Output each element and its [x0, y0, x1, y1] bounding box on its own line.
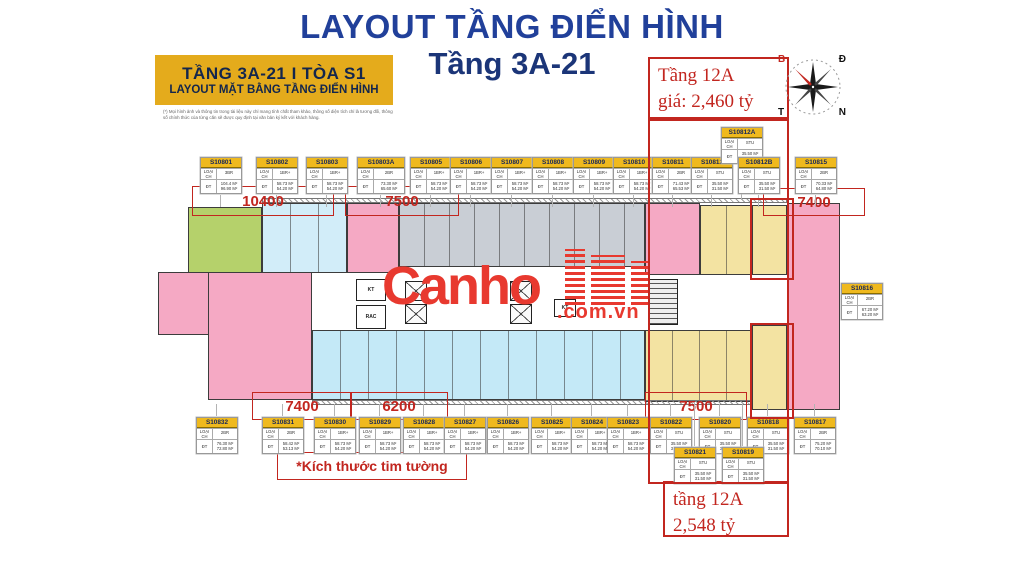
unit-type-value: 1BR+ [420, 429, 444, 439]
unit-area-row: ĐT58.73 M²54.20 M² [307, 179, 347, 193]
unit-type-row: LOẠI CH2BR [795, 428, 835, 439]
unit-type-value: STU [755, 169, 779, 179]
unit-type-value: 1BR+ [590, 169, 614, 179]
unit-type-label: LOẠI CH [492, 169, 508, 179]
unit-type-label: LOẠI CH [700, 429, 716, 439]
unit-area-values: 58.73 M²54.20 M² [624, 440, 648, 453]
unit-type-value: 1BR+ [467, 169, 491, 179]
unit-type-label: LOẠI CH [445, 429, 461, 439]
unit-type-value: STU [691, 459, 715, 469]
unit-card-S10827: S10827LOẠI CH1BR+ĐT58.73 M²54.20 M² [444, 417, 486, 454]
unit-pink-bottom-left [208, 272, 312, 400]
unit-type-value: 2BR [213, 429, 237, 439]
unit-card-S10825: S10825LOẠI CH1BR+ĐT58.73 M²54.20 M² [531, 417, 573, 454]
unit-type-value: 1BR+ [508, 169, 532, 179]
leader-line-S10820 [719, 404, 720, 416]
compass-label-south: N [839, 107, 846, 118]
unit-area-row: ĐT58.73 M²54.20 M² [532, 439, 572, 453]
unit-area-values: 75.20 M²70.10 M² [811, 440, 835, 453]
unit-card-id: S10815 [796, 158, 836, 168]
unit-area-row: ĐT58.73 M²54.20 M² [572, 439, 612, 453]
leader-line-S10832 [216, 404, 217, 416]
leader-line-S10819 [742, 402, 743, 446]
unit-area-values: 58.73 M²54.20 M² [461, 440, 485, 453]
unit-area-row: ĐT58.73 M²54.20 M² [315, 439, 355, 453]
unit-area-values: 58.73 M²54.20 M² [590, 180, 614, 193]
unit-type-row: LOẠI CH1BR+ [315, 428, 355, 439]
units-cyan-bottom [312, 330, 645, 400]
unit-card-id: S10829 [360, 418, 400, 428]
unit-area-values: 58.42 M²53.13 M² [279, 440, 303, 453]
unit-card-S10803A: S10803ALOẠI CH2BRĐT73.30 M²65.60 M² [357, 157, 405, 194]
unit-type-label: LOẠI CH [614, 169, 630, 179]
unit-type-label: LOẠI CH [404, 429, 420, 439]
page-subtitle: Tầng 3A-21 [0, 46, 1024, 82]
unit-area-net: 54.20 M² [624, 446, 648, 451]
unit-type-row: LOẠI CHSTU [739, 168, 779, 179]
unit-area-values: 58.73 M²54.20 M² [630, 180, 654, 193]
unit-type-label: LOẠI CH [201, 169, 217, 179]
leader-line-S10818 [767, 404, 768, 416]
unit-card-id: S10827 [445, 418, 485, 428]
unit-area-row: ĐT58.73 M²54.20 M² [257, 179, 297, 193]
unit-card-id: S10832 [197, 418, 237, 428]
unit-card-id: S10817 [795, 418, 835, 428]
unit-card-id: S10809 [574, 158, 614, 168]
unit-type-label: LOẠI CH [608, 429, 624, 439]
unit-type-label: LOẠI CH [263, 429, 279, 439]
unit-type-value: STU [667, 429, 691, 439]
unit-type-value: 1BR+ [504, 429, 528, 439]
unit-area-row: ĐT35.50 M²31.50 M² [739, 179, 779, 193]
units-yellow-top [700, 205, 752, 275]
unit-type-row: LOẠI CH1BR+ [411, 168, 451, 179]
wall-dimension-note: *Kích thước tim tường [277, 452, 467, 480]
unit-area-values: 58.73 M²54.20 M² [467, 180, 491, 193]
compass-label-east: Đ [839, 54, 846, 65]
unit-card-id: S10826 [488, 418, 528, 428]
dimension-label-7400-3: 7400 [252, 392, 352, 420]
unit-area-label: ĐT [197, 440, 213, 453]
unit-area-label: ĐT [492, 180, 508, 193]
unit-area-label: ĐT [315, 440, 331, 453]
unit-area-net: 54.20 M² [323, 186, 347, 191]
unit-type-row: LOẠI CH1BR+ [451, 168, 491, 179]
leader-line-S10801 [220, 195, 221, 207]
unit-type-row: LOẠI CH1BR+ [533, 168, 573, 179]
unit-type-value: STU [716, 429, 740, 439]
unit-card-id: S10819 [723, 448, 763, 458]
unit-type-row: LOẠI CHSTU [722, 138, 762, 149]
leader-line-S10807 [511, 195, 512, 207]
unit-area-row: ĐT35.50 M²31.50 M² [692, 179, 732, 193]
unit-type-row: LOẠI CHSTU [700, 428, 740, 439]
unit-area-net: 54.20 M² [376, 446, 400, 451]
unit-area-label: ĐT [675, 470, 691, 483]
unit-type-row: LOẠI CH3BR [201, 168, 241, 179]
unit-type-row: LOẠI CH2BR [358, 168, 404, 179]
unit-area-row: ĐT58.73 M²54.20 M² [533, 179, 573, 193]
price-annotation-bottom-line2: 2,548 tỷ [673, 513, 779, 539]
unit-area-values: 58.73 M²54.20 M² [376, 440, 400, 453]
unit-area-values: 58.73 M²54.20 M² [323, 180, 347, 193]
unit-area-label: ĐT [796, 180, 812, 193]
unit-type-label: LOẠI CH [572, 429, 588, 439]
floorplan-page: LAYOUT TẦNG ĐIỂN HÌNH Tầng 3A-21 TẦNG 3A… [0, 0, 1024, 575]
unit-card-id: S10801 [201, 158, 241, 168]
unit-card-id: S10807 [492, 158, 532, 168]
unit-type-value: 2BR [858, 295, 882, 305]
unit-type-label: LOẠI CH [411, 169, 427, 179]
unit-type-row: LOẠI CH1BR+ [492, 168, 532, 179]
unit-card-S10828: S10828LOẠI CH1BR+ĐT58.73 M²54.20 M² [403, 417, 445, 454]
page-title: LAYOUT TẦNG ĐIỂN HÌNH [0, 8, 1024, 46]
unit-card-id: S10803 [307, 158, 347, 168]
unit-area-net: 54.20 M² [461, 446, 485, 451]
unit-card-id: S10812B [739, 158, 779, 168]
unit-card-S10815: S10815LOẠI CH2BRĐT70.33 M²64.80 M² [795, 157, 837, 194]
price-annotation-top-line1: Tầng 12A [658, 63, 779, 89]
unit-card-S10802: S10802LOẠI CH1BR+ĐT58.73 M²54.20 M² [256, 157, 298, 194]
unit-type-value: 1BR+ [461, 429, 485, 439]
leader-line-S10808 [552, 195, 553, 207]
unit-area-values: 71.43 M²65.53 M² [669, 180, 693, 193]
leader-line-S10822 [670, 404, 671, 416]
unit-area-net: 54.20 M² [331, 446, 355, 451]
unit-area-row: ĐT58.73 M²54.20 M² [492, 179, 532, 193]
unit-area-row: ĐT58.73 M²54.20 M² [614, 179, 654, 193]
unit-type-row: LOẠI CH2BR [653, 168, 693, 179]
unit-area-values: 35.50 M²31.50 M² [764, 440, 788, 453]
unit-area-net: 54.20 M² [630, 186, 654, 191]
unit-type-label: LOẠI CH [315, 429, 331, 439]
leader-line-S10812 [711, 195, 712, 207]
dimension-label-7500-5: 7500 [645, 392, 747, 420]
unit-area-label: ĐT [532, 440, 548, 453]
unit-type-value: STU [738, 139, 762, 149]
leader-line-S10811 [672, 195, 673, 207]
unit-type-row: LOẠI CH1BR+ [445, 428, 485, 439]
unit-area-values: 58.73 M²54.20 M² [427, 180, 451, 193]
unit-card-S10806: S10806LOẠI CH1BR+ĐT58.73 M²54.20 M² [450, 157, 492, 194]
unit-type-row: LOẠI CHSTU [723, 458, 763, 469]
unit-card-id: S10830 [315, 418, 355, 428]
unit-area-values: 76.30 M²72.80 M² [213, 440, 237, 453]
unit-card-S10816: S10816LOẠI CH2BRĐT67.20 M²63.20 M² [841, 283, 883, 320]
unit-area-net: 31.50 M² [739, 476, 763, 481]
leader-line-S10829 [379, 404, 380, 416]
unit-area-row: ĐT73.30 M²65.60 M² [358, 179, 404, 193]
unit-type-row: LOẠI CH1BR+ [614, 168, 654, 179]
unit-type-value: 1BR+ [549, 169, 573, 179]
unit-card-S10807: S10807LOẠI CH1BR+ĐT58.73 M²54.20 M² [491, 157, 533, 194]
unit-area-row: ĐT58.73 M²54.20 M² [608, 439, 648, 453]
price-annotation-bottom: tầng 12A 2,548 tỷ [663, 481, 789, 537]
unit-area-label: ĐT [574, 180, 590, 193]
tower-info-line2: LAYOUT MẶT BẰNG TẦNG ĐIỂN HÌNH [155, 84, 393, 96]
unit-card-S10812B: S10812BLOẠI CHSTUĐT35.50 M²31.50 M² [738, 157, 780, 194]
unit-card-id: S10812A [722, 128, 762, 138]
unit-area-values: 58.73 M²54.20 M² [273, 180, 297, 193]
unit-type-value: 2BR [279, 429, 303, 439]
unit-card-id: S10831 [263, 418, 303, 428]
unit-type-label: LOẠI CH [257, 169, 273, 179]
unit-type-label: LOẠI CH [675, 459, 691, 469]
unit-type-row: LOẠI CHSTU [651, 428, 691, 439]
unit-type-label: LOẠI CH [842, 295, 858, 305]
unit-area-values: 58.73 M²54.20 M² [331, 440, 355, 453]
unit-type-label: LOẠI CH [197, 429, 213, 439]
tower-info-box: TẦNG 3A-21 I TÒA S1 LAYOUT MẶT BẰNG TẦNG… [155, 55, 393, 105]
price-annotation-top: Tầng 12A giá: 2,460 tỷ [648, 57, 789, 119]
unit-area-label: ĐT [739, 180, 755, 193]
unit-area-label: ĐT [723, 470, 739, 483]
unit-type-row: LOẠI CH2BR [197, 428, 237, 439]
unit-area-label: ĐT [263, 440, 279, 453]
unit-area-label: ĐT [404, 440, 420, 453]
unit-area-row: ĐT58.73 M²54.20 M² [360, 439, 400, 453]
unit-type-row: LOẠI CH1BR+ [608, 428, 648, 439]
unit-area-net: 31.50 M² [708, 186, 732, 191]
unit-area-label: ĐT [257, 180, 273, 193]
unit-type-value: 1BR+ [427, 169, 451, 179]
unit-area-row: ĐT58.73 M²54.20 M² [488, 439, 528, 453]
unit-card-id: S10821 [675, 448, 715, 458]
compass-label-north: B [778, 54, 785, 65]
unit-area-row: ĐT71.43 M²65.53 M² [653, 179, 693, 193]
unit-type-label: LOẠI CH [532, 429, 548, 439]
unit-card-S10808: S10808LOẠI CH1BR+ĐT58.73 M²54.20 M² [532, 157, 574, 194]
unit-type-value: 3BR [217, 169, 241, 179]
leader-line-S10802 [276, 195, 277, 207]
price-annotation-top-line2: giá: 2,460 tỷ [658, 89, 779, 115]
unit-type-value: 2BR [374, 169, 404, 179]
watermark-text: Canho [382, 255, 540, 317]
unit-card-S10823: S10823LOẠI CH1BR+ĐT58.73 M²54.20 M² [607, 417, 649, 454]
unit-area-net: 65.60 M² [374, 186, 404, 191]
disclaimer-text: (*) Mọi hình ảnh và thông tin trong tài … [163, 109, 393, 121]
unit-area-label: ĐT [608, 440, 624, 453]
unit-area-label: ĐT [307, 180, 323, 193]
unit-card-S10821: S10821LOẠI CHSTUĐT35.50 M²31.50 M² [674, 447, 716, 484]
unit-type-label: LOẠI CH [651, 429, 667, 439]
unit-area-label: ĐT [572, 440, 588, 453]
unit-card-S10801: S10801LOẠI CH3BRĐT104.4 M²96.90 M² [200, 157, 242, 194]
unit-area-label: ĐT [488, 440, 504, 453]
unit-type-label: LOẠI CH [796, 169, 812, 179]
unit-type-value: STU [708, 169, 732, 179]
unit-area-values: 58.73 M²54.20 M² [420, 440, 444, 453]
unit-area-row: ĐT104.4 M²96.90 M² [201, 179, 241, 193]
leader-line-S10817 [814, 404, 815, 416]
leader-line-S10821 [694, 402, 695, 446]
leader-line-S10810 [633, 195, 634, 207]
leader-line-S10830 [334, 404, 335, 416]
unit-card-id: S10810 [614, 158, 654, 168]
leader-line-S10828 [423, 404, 424, 416]
unit-type-value: 1BR+ [630, 169, 654, 179]
unit-area-row: ĐT76.30 M²72.80 M² [197, 439, 237, 453]
stairwell-icon [648, 279, 678, 325]
unit-yellow-bottom-hl [752, 325, 787, 410]
unit-card-id: S10820 [700, 418, 740, 428]
unit-type-value: STU [739, 459, 763, 469]
unit-area-label: ĐT [201, 180, 217, 193]
unit-area-row: ĐT67.20 M²63.20 M² [842, 305, 882, 319]
unit-area-row: ĐT58.73 M²54.20 M² [404, 439, 444, 453]
unit-area-label: ĐT [842, 306, 858, 319]
unit-area-row: ĐT75.20 M²70.10 M² [795, 439, 835, 453]
unit-type-label: LOẠI CH [360, 429, 376, 439]
unit-card-id: S10808 [533, 158, 573, 168]
unit-area-row: ĐT58.73 M²54.20 M² [411, 179, 451, 193]
unit-card-id: S10822 [651, 418, 691, 428]
leader-line-S10803A [380, 195, 381, 207]
unit-card-S10832: S10832LOẠI CH2BRĐT76.30 M²72.80 M² [196, 417, 238, 454]
unit-type-label: LOẠI CH [723, 459, 739, 469]
unit-area-values: 35.50 M²31.50 M² [739, 470, 763, 483]
unit-type-row: LOẠI CHSTU [675, 458, 715, 469]
tower-info-line1: TẦNG 3A-21 I TÒA S1 [155, 64, 393, 84]
compass-rose-icon: B Đ T N [778, 52, 848, 122]
unit-area-row: ĐT58.42 M²53.13 M² [263, 439, 303, 453]
unit-area-label: ĐT [614, 180, 630, 193]
unit-card-id: S10823 [608, 418, 648, 428]
unit-type-value: 2BR [669, 169, 693, 179]
leader-line-S10831 [282, 404, 283, 416]
unit-type-label: LOẠI CH [574, 169, 590, 179]
unit-type-label: LOẠI CH [722, 139, 738, 149]
unit-type-value: 1BR+ [624, 429, 648, 439]
leader-line-S10803 [326, 195, 327, 207]
unit-area-label: ĐT [411, 180, 427, 193]
unit-card-id: S10818 [748, 418, 788, 428]
unit-area-row: ĐT35.50 M²31.50 M² [723, 469, 763, 483]
unit-area-values: 35.50 M²31.50 M² [691, 470, 715, 483]
unit-card-S10817: S10817LOẠI CH2BRĐT75.20 M²70.10 M² [794, 417, 836, 454]
unit-area-values: 58.73 M²54.20 M² [548, 440, 572, 453]
unit-type-value: 1BR+ [273, 169, 297, 179]
unit-type-label: LOẠI CH [307, 169, 323, 179]
unit-type-value: 2BR [812, 169, 836, 179]
unit-type-row: LOẠI CH1BR+ [360, 428, 400, 439]
unit-area-row: ĐT58.73 M²54.20 M² [445, 439, 485, 453]
unit-type-row: LOẠI CH1BR+ [532, 428, 572, 439]
unit-type-value: 1BR+ [323, 169, 347, 179]
unit-area-net: 70.10 M² [811, 446, 835, 451]
unit-pink-top-mid [645, 203, 700, 275]
unit-area-net: 65.53 M² [669, 186, 693, 191]
unit-area-values: 58.73 M²54.20 M² [549, 180, 573, 193]
unit-type-value: STU [764, 429, 788, 439]
unit-type-row: LOẠI CH1BR+ [488, 428, 528, 439]
unit-area-label: ĐT [795, 440, 811, 453]
unit-type-row: LOẠI CH1BR+ [404, 428, 444, 439]
unit-area-net: 54.20 M² [504, 446, 528, 451]
unit-card-S10803: S10803LOẠI CH1BR+ĐT58.73 M²54.20 M² [306, 157, 348, 194]
unit-area-values: 104.4 M²96.90 M² [217, 180, 241, 193]
unit-card-id: S10806 [451, 158, 491, 168]
unit-card-S10811: S10811LOẠI CH2BRĐT71.43 M²65.53 M² [652, 157, 694, 194]
unit-card-id: S10816 [842, 284, 882, 294]
unit-area-net: 54.20 M² [273, 186, 297, 191]
unit-card-S10805: S10805LOẠI CH1BR+ĐT58.73 M²54.20 M² [410, 157, 452, 194]
unit-area-net: 54.20 M² [467, 186, 491, 191]
unit-area-label: ĐT [653, 180, 669, 193]
price-annotation-bottom-line1: tầng 12A [673, 487, 779, 513]
unit-area-net: 54.20 M² [508, 186, 532, 191]
unit-type-row: LOẠI CH2BR [842, 294, 882, 305]
unit-type-row: LOẠI CH1BR+ [307, 168, 347, 179]
leader-line-S10824 [591, 404, 592, 416]
unit-area-row: ĐT58.73 M²54.20 M² [451, 179, 491, 193]
unit-area-label: ĐT [358, 180, 374, 193]
leader-line-S10827 [464, 404, 465, 416]
unit-type-value: 1BR+ [376, 429, 400, 439]
leader-line-S10806 [470, 195, 471, 207]
unit-type-label: LOẠI CH [533, 169, 549, 179]
unit-card-S10810: S10810LOẠI CH1BR+ĐT58.73 M²54.20 M² [613, 157, 655, 194]
unit-area-values: 35.50 M²31.50 M² [755, 180, 779, 193]
unit-area-values: 70.33 M²64.80 M² [812, 180, 836, 193]
unit-area-label: ĐT [451, 180, 467, 193]
leader-line-S10825 [551, 404, 552, 416]
unit-area-net: 54.20 M² [590, 186, 614, 191]
unit-card-S10831: S10831LOẠI CH2BRĐT58.42 M²53.13 M² [262, 417, 304, 454]
unit-area-row: ĐT35.50 M²31.50 M² [675, 469, 715, 483]
leader-line-S10805 [430, 195, 431, 207]
unit-type-label: LOẠI CH [653, 169, 669, 179]
unit-type-row: LOẠI CH1BR+ [574, 168, 614, 179]
leader-line-S10826 [507, 404, 508, 416]
unit-pink-right-column [787, 203, 840, 410]
unit-area-values: 58.73 M²54.20 M² [504, 440, 528, 453]
unit-area-net: 96.90 M² [217, 186, 241, 191]
unit-type-label: LOẠI CH [488, 429, 504, 439]
unit-area-row: ĐT70.33 M²64.80 M² [796, 179, 836, 193]
unit-area-net: 31.50 M² [691, 476, 715, 481]
unit-area-net: 54.20 M² [549, 186, 573, 191]
unit-card-S10826: S10826LOẠI CH1BR+ĐT58.73 M²54.20 M² [487, 417, 529, 454]
unit-card-id: S10805 [411, 158, 451, 168]
unit-type-value: 2BR [811, 429, 835, 439]
unit-area-values: 73.30 M²65.60 M² [374, 180, 404, 193]
leader-line-S10815 [815, 195, 816, 207]
unit-card-id: S10828 [404, 418, 444, 428]
unit-area-label: ĐT [651, 440, 667, 453]
unit-card-S10830: S10830LOẠI CH1BR+ĐT58.73 M²54.20 M² [314, 417, 356, 454]
unit-card-id: S10824 [572, 418, 612, 428]
unit-area-net: 63.20 M² [858, 312, 882, 317]
unit-area-net: 64.80 M² [812, 186, 836, 191]
unit-area-label: ĐT [533, 180, 549, 193]
unit-card-S10829: S10829LOẠI CH1BR+ĐT58.73 M²54.20 M² [359, 417, 401, 454]
unit-type-row: LOẠI CHSTU [748, 428, 788, 439]
compass-label-west: T [778, 107, 784, 118]
balcony-hatch-0 [262, 198, 787, 203]
unit-card-id: S10811 [653, 158, 693, 168]
unit-card-S10819: S10819LOẠI CHSTUĐT35.50 M²31.50 M² [722, 447, 764, 484]
unit-area-net: 53.13 M² [279, 446, 303, 451]
unit-type-label: LOẠI CH [739, 169, 755, 179]
unit-card-id: S10802 [257, 158, 297, 168]
unit-area-net: 72.80 M² [213, 446, 237, 451]
unit-area-label: ĐT [692, 180, 708, 193]
unit-area-net: 54.20 M² [427, 186, 451, 191]
unit-type-row: LOẠI CH1BR+ [572, 428, 612, 439]
unit-type-value: 1BR+ [548, 429, 572, 439]
unit-type-row: LOẠI CH2BR [263, 428, 303, 439]
